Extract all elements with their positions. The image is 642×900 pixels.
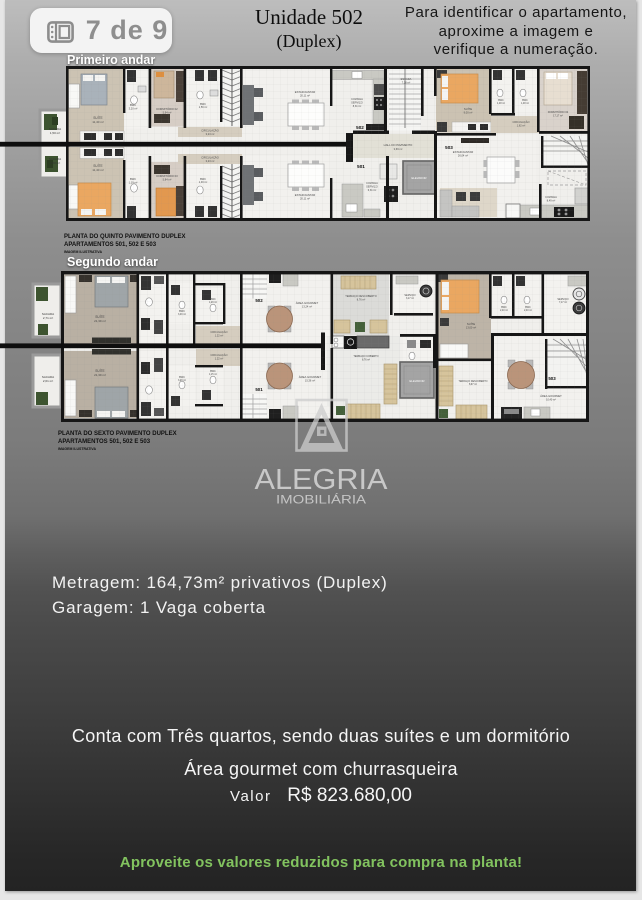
svg-text:1,50 m²: 1,50 m²: [50, 131, 60, 135]
svg-text:2,71 m²: 2,71 m²: [43, 316, 53, 320]
svg-text:IMOBILIÁRIA: IMOBILIÁRIA: [276, 494, 366, 507]
svg-text:2,61 m²: 2,61 m²: [43, 379, 53, 383]
svg-text:1,50 m²: 1,50 m²: [50, 161, 60, 165]
svg-text:ALEGRIA: ALEGRIA: [255, 464, 389, 496]
